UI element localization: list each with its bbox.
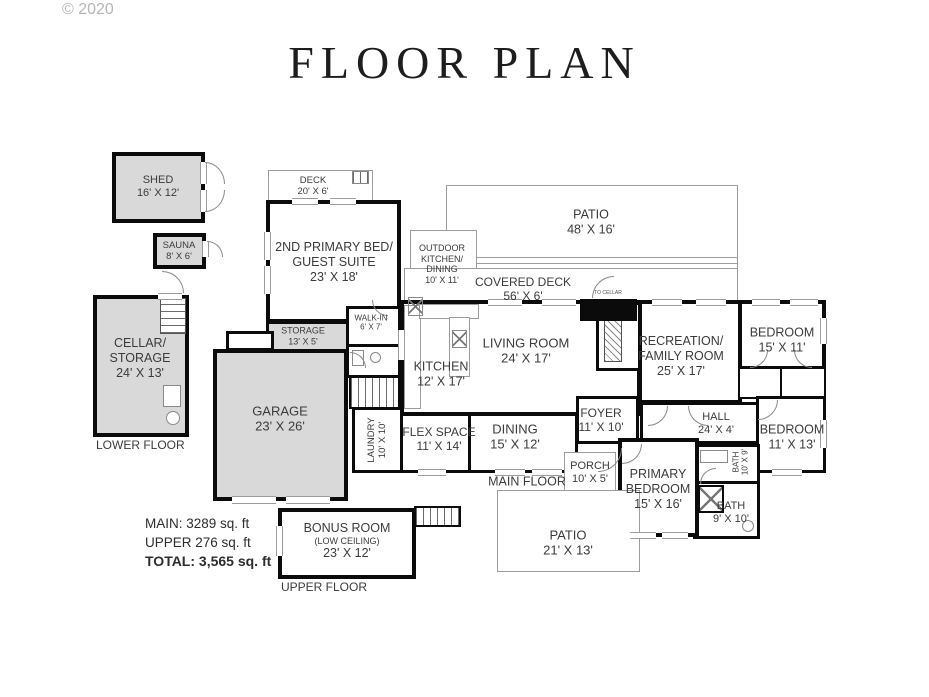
fireplace-hatch <box>604 316 622 362</box>
area-summary: MAIN: 3289 sq. ft UPPER 276 sq. ft TOTAL… <box>145 514 271 571</box>
lower-floor-label: LOWER FLOOR <box>96 438 185 452</box>
upper-floor-label: UPPER FLOOR <box>281 580 367 594</box>
patio-top-label: PATIO48' X 16' <box>567 207 615 237</box>
total-area-text: TOTAL: 3,565 sq. ft <box>145 552 271 571</box>
patio-bottom-label: PATIO21' X 13' <box>543 528 593 559</box>
window <box>820 318 827 344</box>
recreation-label: RECREATION/FAMILY ROOM25' X 17' <box>638 334 724 378</box>
cellar-door-gap <box>158 293 182 300</box>
door-arc <box>205 162 225 184</box>
flex-space-label: FLEX SPACE11' X 14' <box>402 425 475 453</box>
kitchen-counter <box>404 305 421 409</box>
tub-fixture <box>700 450 728 463</box>
cellar-sink <box>166 411 180 425</box>
to-cellar-label: TO CELLAR <box>594 291 622 297</box>
bonus-stairs <box>414 506 461 527</box>
cellar-stairs <box>160 298 186 334</box>
bath-small-label: BATH10' X 9' <box>732 449 751 475</box>
second-primary-suite-label: 2ND PRIMARY BED/GUEST SUITE23' X 18' <box>275 240 393 284</box>
storage-label: STORAGE13' X 5' <box>281 325 325 346</box>
door-arc <box>162 271 184 293</box>
window <box>398 330 405 360</box>
window <box>790 299 818 306</box>
foyer-label: FOYER11' X 10' <box>578 406 623 434</box>
bonus-room-label: BONUS ROOM(LOW CEILING)23' X 12' <box>304 521 391 561</box>
window <box>752 299 780 306</box>
dining-label: DINING15' X 12' <box>490 422 540 453</box>
page-title: FLOOR PLAN <box>0 36 929 89</box>
living-room-label: LIVING ROOM24' X 17' <box>483 336 570 367</box>
window <box>662 532 688 539</box>
hall-label: HALL24' X 4' <box>698 411 734 437</box>
closet-outline <box>738 367 783 399</box>
walkin-label: WALK-IN6' X 7' <box>354 314 387 333</box>
outdoor-kitchen-label: OUTDOORKITCHEN/DINING10' X 11' <box>419 243 465 285</box>
main-stairs <box>349 376 400 409</box>
window <box>264 232 271 260</box>
window <box>292 198 318 205</box>
stove-icon <box>452 330 467 348</box>
cellar-stair-block <box>580 299 637 321</box>
primary-bedroom-label: PRIMARYBEDROOM15' X 16' <box>626 467 691 511</box>
bath-label: BATH9' X 10' <box>713 500 749 526</box>
main-floor-label: MAIN FLOOR <box>488 475 566 490</box>
window <box>696 299 726 306</box>
window <box>264 266 271 294</box>
covered-deck-label: COVERED DECK56' X 6' <box>475 275 571 303</box>
upper-area-text: UPPER 276 sq. ft <box>145 533 271 552</box>
copyright-watermark: © 2020 <box>62 1 114 19</box>
sauna-label: SAUNA8' X 6' <box>163 240 196 262</box>
closet-outline <box>780 367 826 399</box>
door-arc <box>205 190 225 212</box>
window <box>418 469 446 476</box>
laundry-label: LAUNDRY10' X 10' <box>366 417 388 462</box>
kitchen-label: KITCHEN12' X 17' <box>414 359 469 389</box>
garage-door-gap <box>232 496 276 504</box>
deck-label: DECK20' X 6' <box>297 175 328 197</box>
garage-door-gap <box>286 496 330 504</box>
floor-plan-canvas: © 2020 FLOOR PLAN SHED16' X 12' SAUNA8' … <box>0 0 929 697</box>
window <box>652 299 682 306</box>
garage-label: GARAGE23' X 26' <box>252 404 308 435</box>
cellar-fixture <box>163 385 181 407</box>
window <box>630 532 656 539</box>
door-arc <box>207 241 223 257</box>
bedroom-top-label: BEDROOM15' X 11' <box>750 325 815 355</box>
cellar-label: CELLAR/STORAGE24' X 13' <box>110 336 171 380</box>
grill-icon <box>408 297 423 316</box>
window <box>330 198 356 205</box>
shed-label: SHED16' X 12' <box>137 174 179 200</box>
main-area-text: MAIN: 3289 sq. ft <box>145 514 271 533</box>
bedroom-right-label: BEDROOM11' X 13' <box>760 422 825 452</box>
sink-fixture <box>370 352 381 363</box>
window <box>276 526 283 556</box>
garage-entry-outline <box>226 331 274 351</box>
porch-label: PORCH10' X 5' <box>570 460 610 486</box>
window <box>772 469 802 476</box>
deck-steps <box>352 171 369 184</box>
